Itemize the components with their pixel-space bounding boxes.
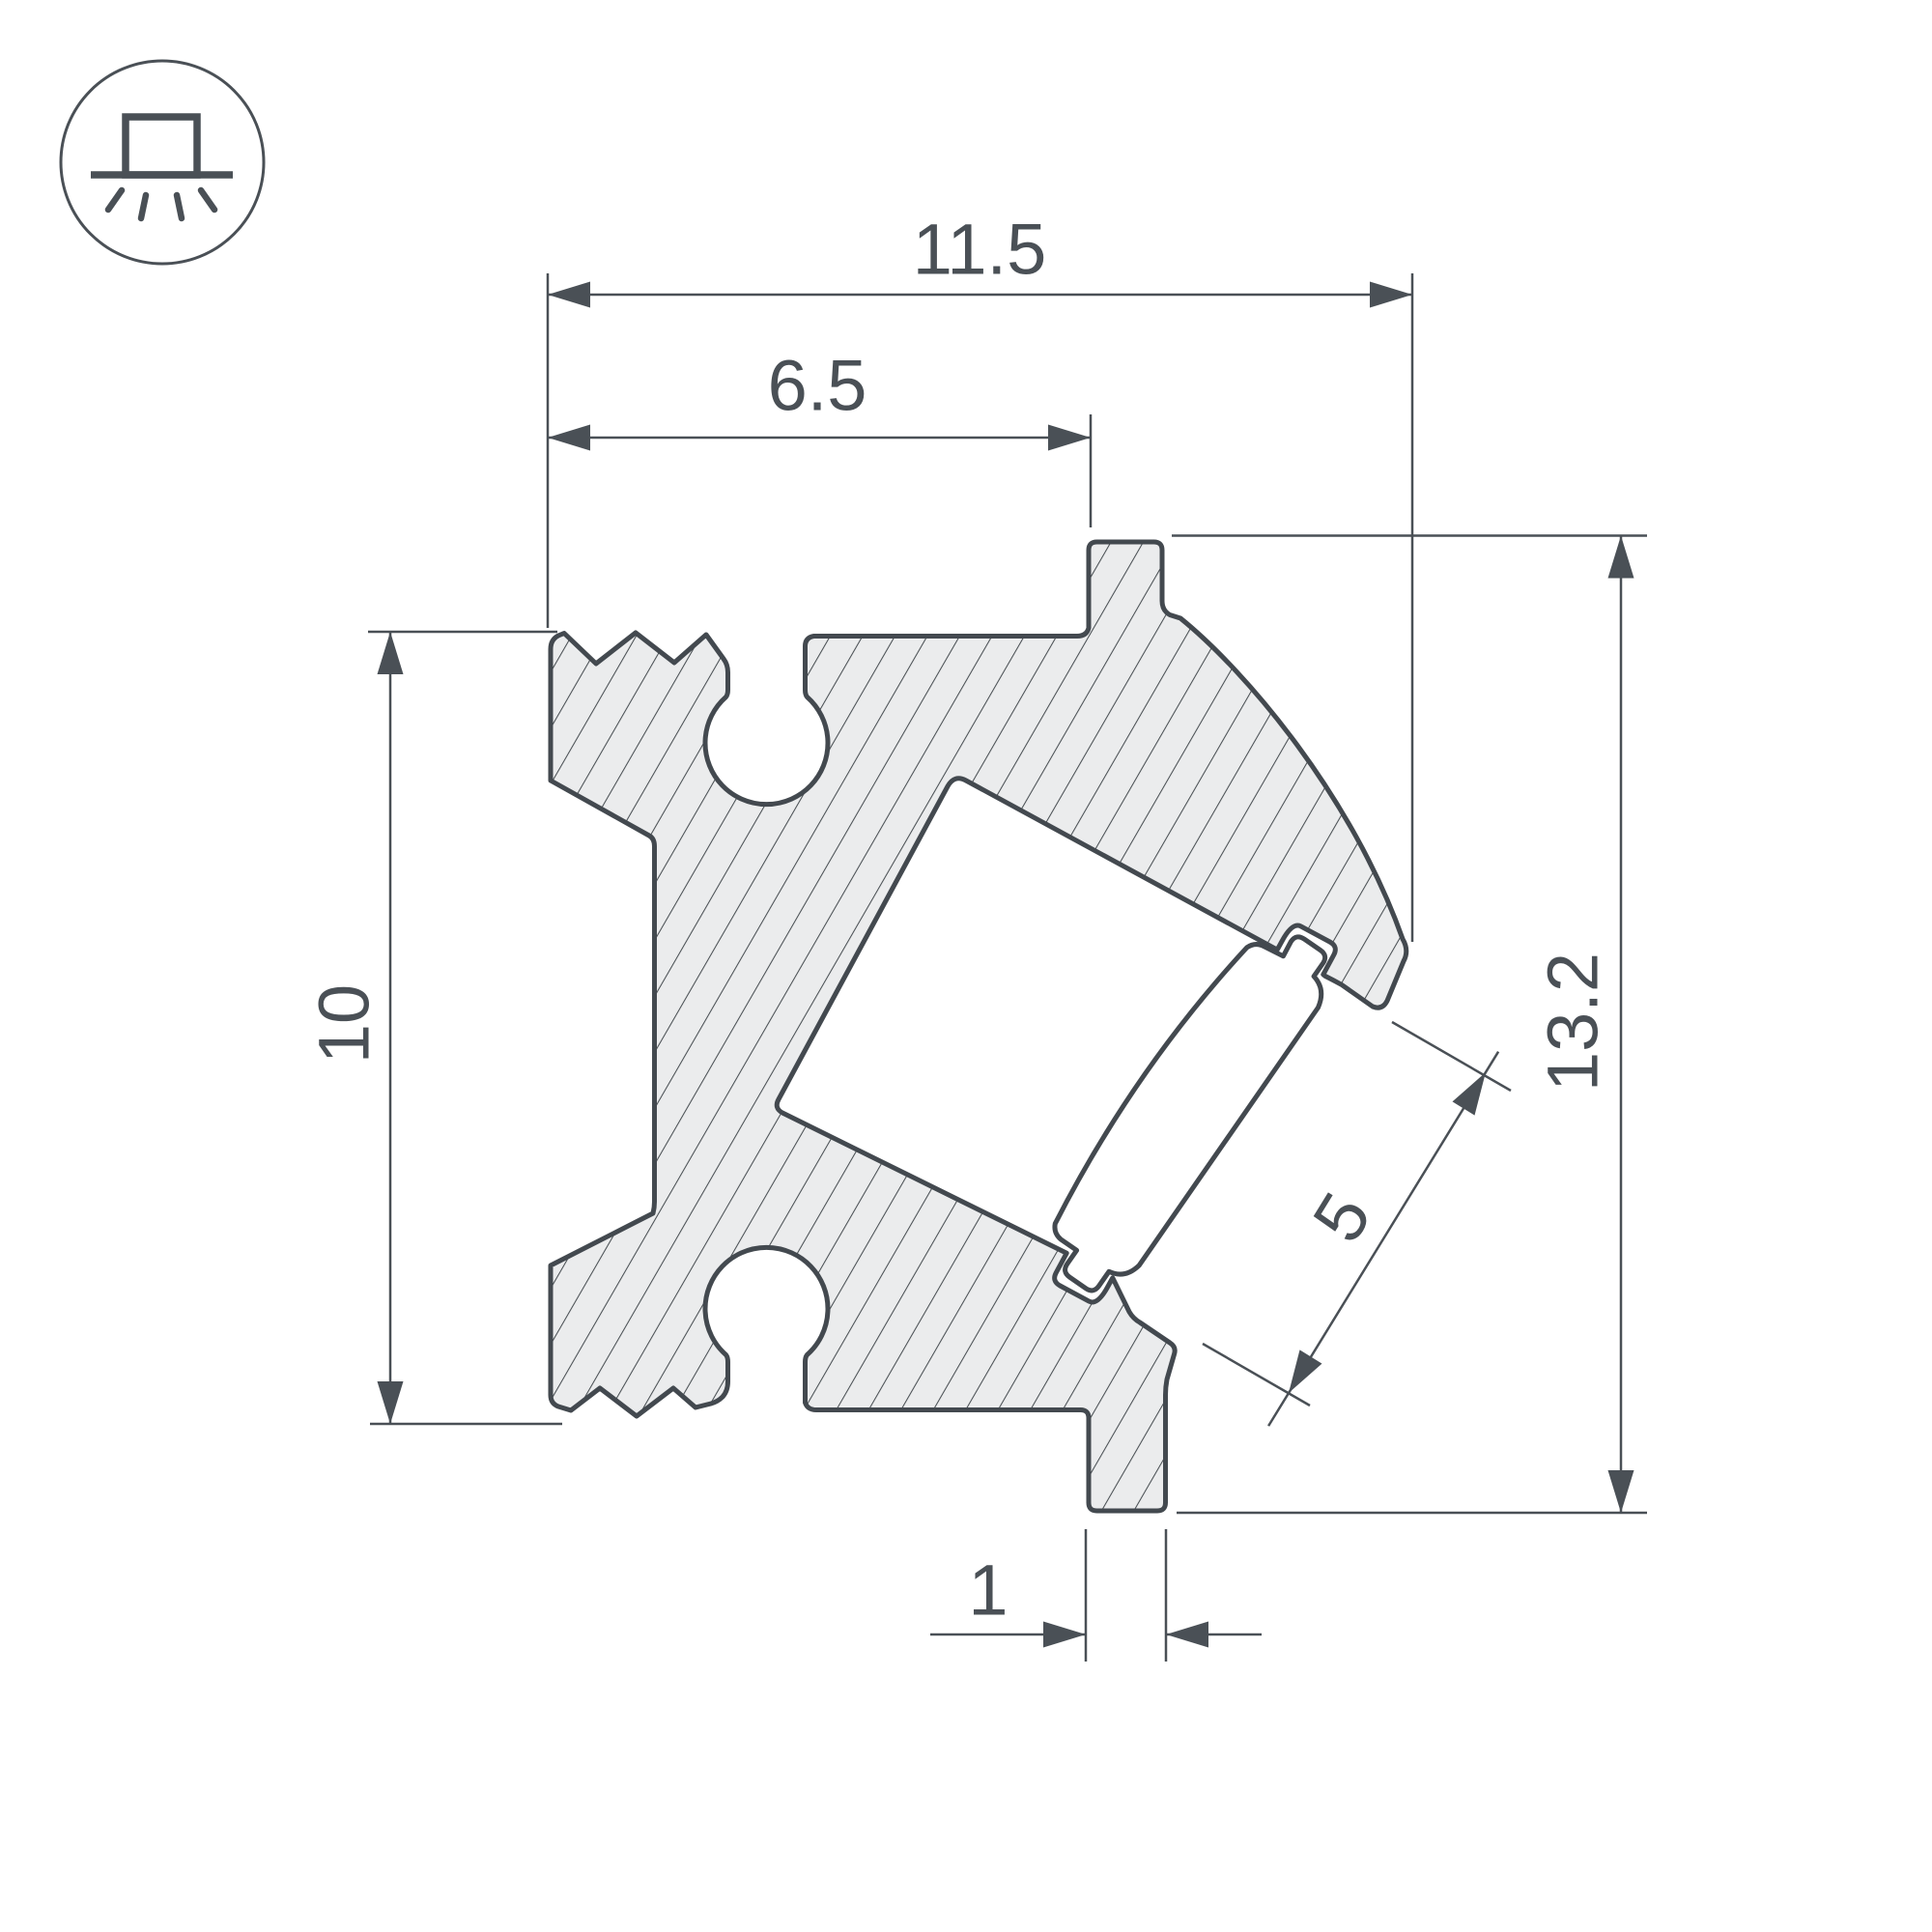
- svg-text:10: 10: [304, 984, 384, 1064]
- svg-text:13.2: 13.2: [1533, 952, 1613, 1092]
- svg-text:6.5: 6.5: [768, 346, 867, 426]
- svg-text:1: 1: [968, 1550, 1008, 1631]
- svg-text:11.5: 11.5: [913, 210, 1047, 290]
